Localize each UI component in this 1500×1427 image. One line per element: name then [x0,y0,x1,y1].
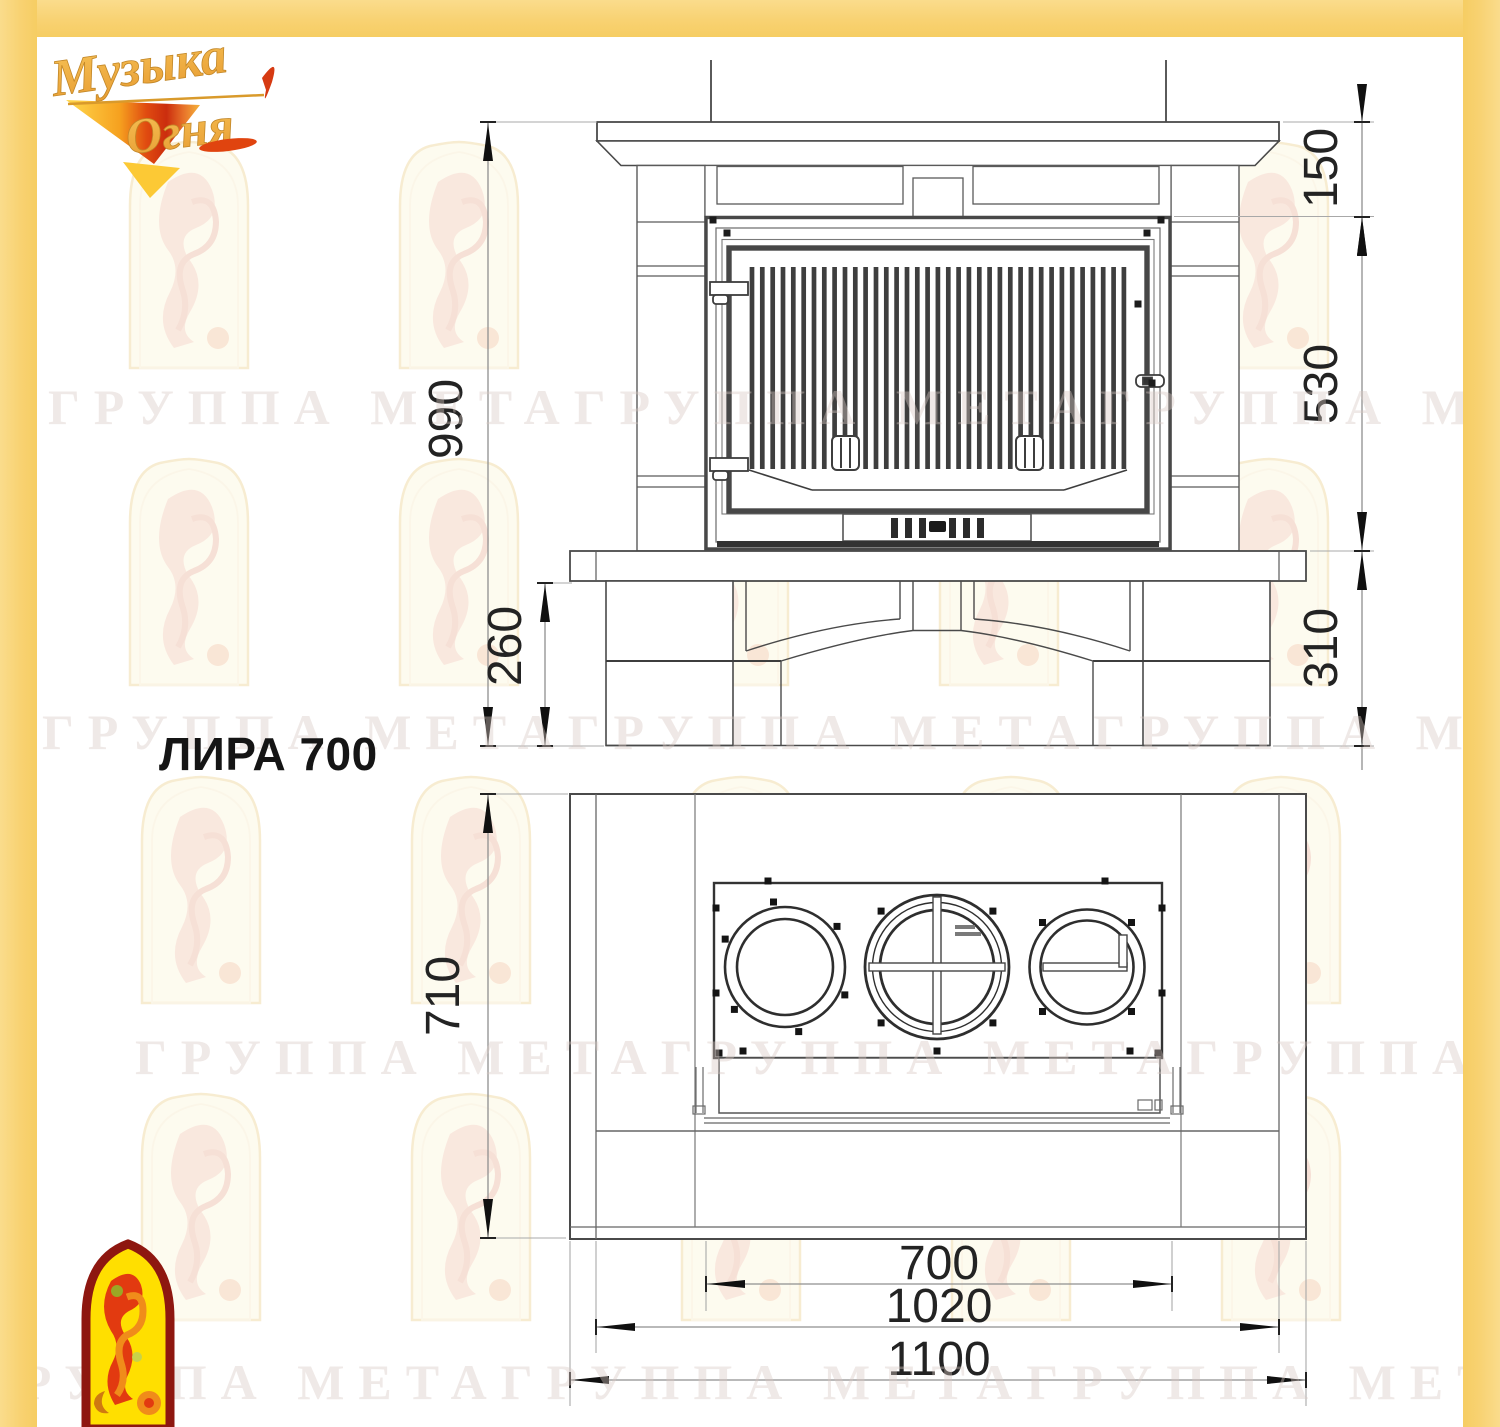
svg-text:Музыка: Музыка [47,27,230,108]
svg-text:Огня: Огня [123,96,237,165]
svg-text:1020: 1020 [886,1280,993,1333]
svg-text:150: 150 [1295,128,1348,208]
svg-text:710: 710 [417,956,470,1036]
svg-text:260: 260 [479,606,532,686]
svg-text:310: 310 [1295,608,1348,688]
